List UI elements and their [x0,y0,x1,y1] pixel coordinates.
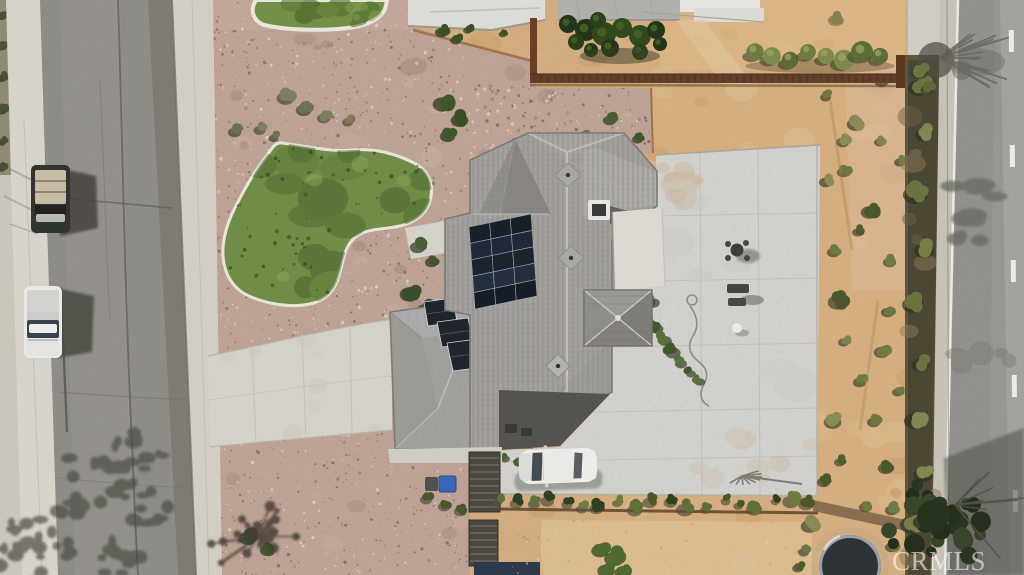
svg-text:CRMLS: CRMLS [892,546,986,575]
